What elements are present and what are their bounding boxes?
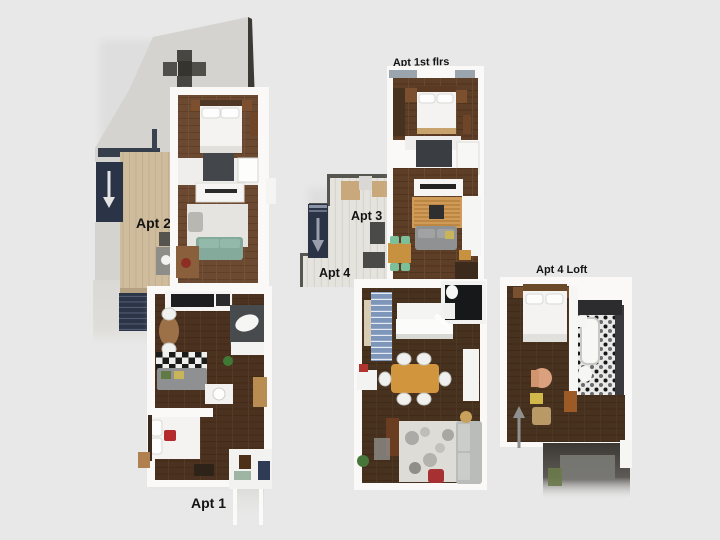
svg-text:Apt 4: Apt 4 — [319, 266, 350, 280]
svg-text:Apt 4 Loft: Apt 4 Loft — [536, 264, 588, 276]
svg-text:Apt 3: Apt 3 — [351, 209, 382, 223]
svg-text:Apt 1: Apt 1 — [191, 495, 226, 511]
svg-text:Apt 2: Apt 2 — [136, 215, 171, 231]
